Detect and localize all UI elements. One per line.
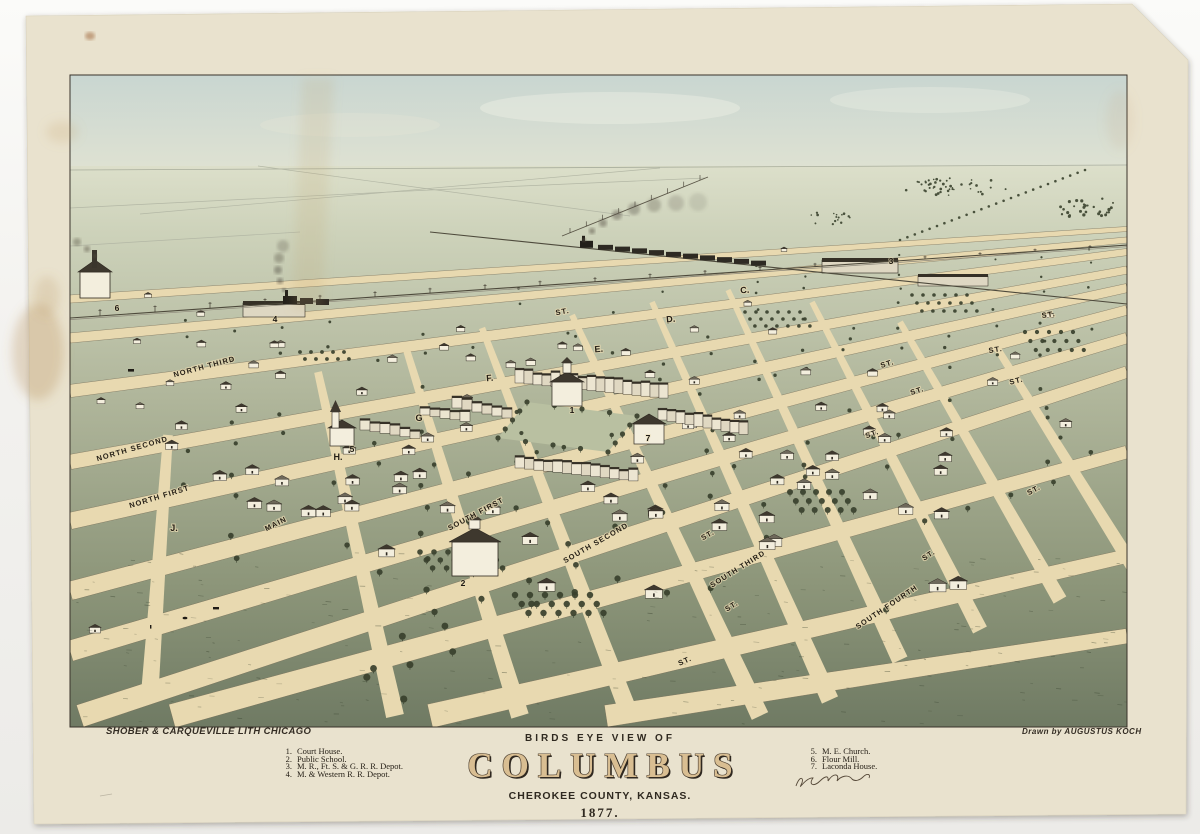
street-label: E. bbox=[594, 344, 603, 355]
paper-stain bbox=[34, 276, 60, 316]
street-label: C. bbox=[740, 285, 750, 296]
landmark-number: 7 bbox=[646, 433, 651, 443]
locomotive-smoke bbox=[628, 203, 640, 215]
wagon bbox=[213, 607, 219, 609]
scanned-map-photo: NORTH THIRDNORTH SECONDNORTH FIRSTMAINSO… bbox=[0, 0, 1200, 834]
street-label: F. bbox=[486, 373, 494, 384]
landmark-number: 3 bbox=[889, 256, 894, 266]
paper-stain bbox=[1106, 90, 1134, 150]
locomotive-smoke bbox=[647, 198, 661, 212]
locomotive-smoke bbox=[582, 238, 586, 242]
paper-stain bbox=[46, 121, 78, 143]
landmark-number: 6 bbox=[115, 303, 120, 313]
street-label: H. bbox=[334, 452, 343, 462]
landmark-number: 4 bbox=[273, 314, 278, 324]
street-label: J. bbox=[170, 523, 178, 533]
walking-figure bbox=[150, 625, 151, 629]
horse-rider bbox=[183, 617, 188, 620]
map-scene: NORTH THIRDNORTH SECONDNORTH FIRSTMAINSO… bbox=[0, 0, 1200, 834]
landmark-number: 1 bbox=[570, 405, 575, 415]
artwork bbox=[45, 75, 1141, 728]
court-house-building bbox=[552, 382, 582, 406]
public-school-building bbox=[452, 542, 498, 576]
street-label: D. bbox=[666, 314, 676, 325]
mill-smoke bbox=[93, 254, 97, 258]
locomotive-smoke bbox=[612, 210, 622, 220]
locomotive-smoke bbox=[668, 195, 684, 211]
paper-stain bbox=[85, 32, 95, 40]
mill-smoke bbox=[84, 246, 90, 252]
locomotive-smoke bbox=[599, 219, 607, 227]
mill-smoke bbox=[73, 238, 81, 246]
landmark-number: 2 bbox=[461, 578, 466, 588]
flour-mill-building bbox=[80, 272, 110, 298]
street-label: G bbox=[415, 413, 422, 423]
mill-smokestack bbox=[92, 250, 97, 268]
locomotive-smoke bbox=[589, 228, 595, 234]
wagon bbox=[128, 369, 134, 372]
landmark-number: 5 bbox=[350, 444, 355, 454]
paper-stain bbox=[12, 304, 64, 400]
locomotive-smoke bbox=[689, 193, 707, 211]
